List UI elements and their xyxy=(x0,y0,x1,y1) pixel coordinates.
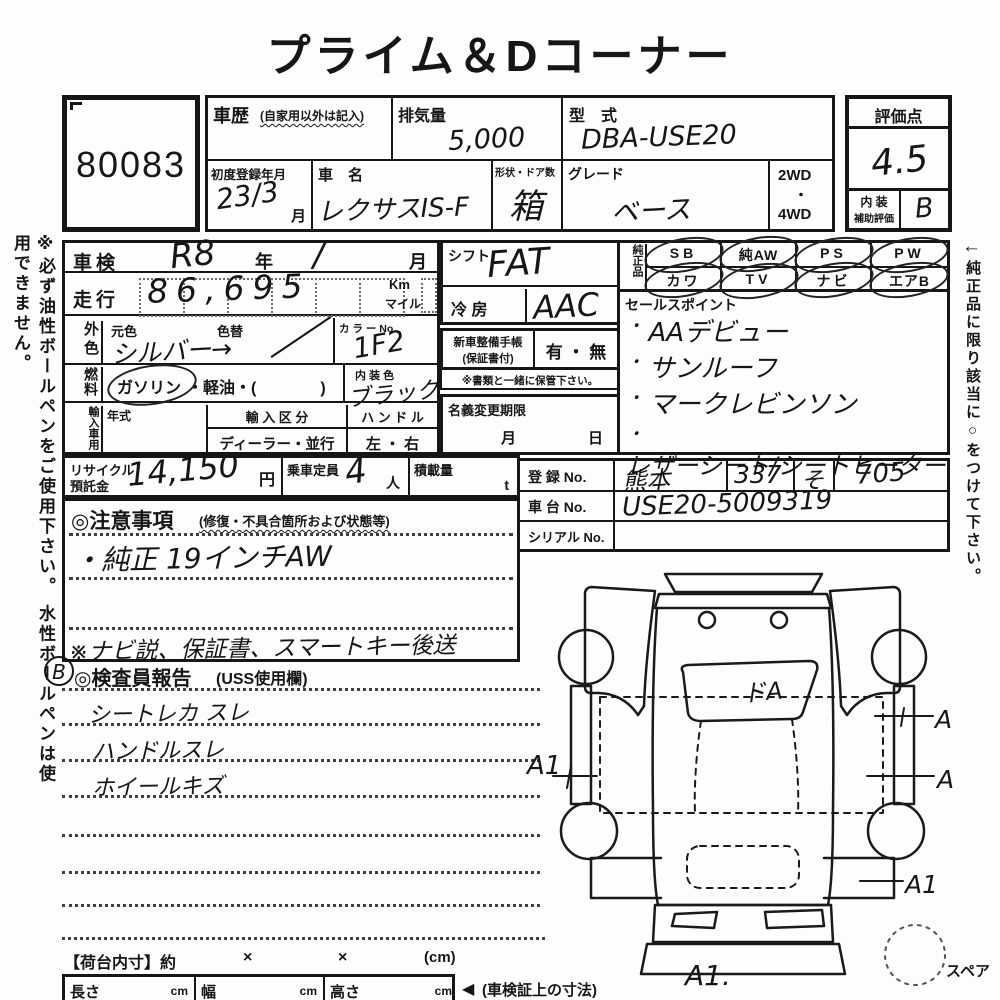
shift-value: FAT xyxy=(486,241,551,286)
fuel-circle-mark xyxy=(105,359,200,411)
right-genuine-note: 純正品に限り該当に○をつけて下さい。 xyxy=(962,260,983,700)
bed-label: 【荷台内寸】約 xyxy=(64,949,176,973)
bed-unit: (cm) xyxy=(424,949,456,966)
first-reg-cell: 初度登録年月 23/3 月 xyxy=(208,161,313,229)
import-class-label: 輸 入 区 分 xyxy=(208,405,346,429)
ext-color-row: 外色 元色 色替 シルバー→ カ ラ ー No. 1F2 xyxy=(65,318,437,365)
grade-cell: グレード ベース xyxy=(563,161,770,229)
left-door-strip xyxy=(571,686,591,804)
inspector-badge: B xyxy=(44,656,74,686)
shaken-month-value: / xyxy=(313,235,324,275)
trunk-detail-right xyxy=(771,612,787,628)
displacement-value: 5,000 xyxy=(447,122,526,157)
name-change-label: 名義変更期限 xyxy=(448,400,526,419)
model-code-cell: 型 式 DBA-USE20 xyxy=(563,98,832,161)
right-rear-wheel xyxy=(868,803,924,859)
sales-bullet: ・ xyxy=(626,388,644,409)
grade-label: グレード xyxy=(568,164,624,184)
sunroof-dashed-outline xyxy=(687,846,799,888)
roof-dashed-outline xyxy=(600,697,883,813)
name-change-box: 名義変更期限 月 日 xyxy=(440,394,620,455)
displacement-cell: 排気量 5,000 xyxy=(393,98,563,161)
width-label: 幅 xyxy=(201,981,216,1000)
ac-value: AAC xyxy=(532,285,600,326)
headlight-left xyxy=(672,912,717,928)
import-class-cell: 輸 入 区 分 ディーラー・並行 xyxy=(208,405,348,452)
name-change-month: 月 xyxy=(501,427,516,448)
import-row: 輸入車用 年式 輸 入 区 分 ディーラー・並行 ハ ン ド ル 左 ・ 右 xyxy=(65,405,437,452)
fuel-row: 燃料 ガソリン ・軽油・( ) 内 装 色 ブラック xyxy=(65,365,437,403)
inspector-badge-value: B xyxy=(52,660,66,684)
height-label: 高さ xyxy=(330,981,360,1000)
body-right-edge xyxy=(828,608,833,905)
load-unit: t xyxy=(504,477,509,493)
ac-label: 冷 房 xyxy=(451,296,487,320)
capacity-label: 乗車定員 xyxy=(287,460,339,479)
left-rear-wheel xyxy=(561,803,617,859)
shift-ac-box: シフト FAT 冷 房 AAC xyxy=(440,240,620,325)
reg-no-label: 登 録 No. xyxy=(528,467,586,487)
drive-2wd: 2WD xyxy=(778,167,811,184)
year-model-label: 年式 xyxy=(107,407,131,424)
mile-box xyxy=(421,278,437,313)
vehicle-table: 車検 R8 年 / 月 走行 86,695 Km マイル 外色 元色 色替 シル… xyxy=(62,240,440,455)
body-shape-value: 箱 xyxy=(509,179,543,228)
mile-label: マイル xyxy=(385,295,421,312)
capacity-value: 4 xyxy=(342,451,369,494)
car-name-cell: 車 名 レクサスIS-F xyxy=(313,161,493,229)
service-book-note: ※書類と一緒に保管下さい。 xyxy=(440,370,620,390)
body-left-edge xyxy=(653,608,658,905)
service-book-label-1: 新車整備手帳 xyxy=(443,334,533,350)
dims-arrow-icon: ◀ xyxy=(462,979,474,999)
left-rear-panel xyxy=(591,858,661,898)
mileage-label: 走行 xyxy=(73,285,119,312)
notes-title: ◎注意事項 xyxy=(71,505,173,535)
right-fender-panel xyxy=(830,587,900,715)
body-shape-cell: 形状・ドア数 箱 xyxy=(493,161,563,229)
score-value: 4.5 xyxy=(869,138,930,185)
notes-box: ◎注意事項 (修復・不具合箇所および状態等) ・純正 19インチAW ※ナビ説、… xyxy=(62,498,520,662)
grade-value: ベース xyxy=(610,187,692,230)
sales-bullet: ・ xyxy=(626,352,644,373)
car-name-label: 車 名 xyxy=(318,164,363,185)
reg-class-value: 337 xyxy=(734,460,782,489)
service-book-box: 新車整備手帳 (保証書付) 有 ・ 無 xyxy=(440,328,620,370)
serial-no-label: シリアル No. xyxy=(528,527,604,546)
left-pen-note: ※必ず油性ボールペンをご使用下さい。 水性ボールペンは使用できません。 xyxy=(8,234,58,794)
damage-mark-right-bottom: A1 xyxy=(903,870,938,899)
displacement-label: 排気量 xyxy=(398,102,446,126)
reg-number-value: 705 xyxy=(855,457,907,490)
score-box: 評価点 4.5 内 装 補助評価 B xyxy=(845,95,952,232)
left-fender-panel xyxy=(585,587,655,715)
dims-table: 長さ cm 幅 cm 高さ cm xyxy=(62,974,455,1000)
shaken-label: 車検 xyxy=(73,248,119,275)
slash-mark xyxy=(271,316,332,358)
service-book-label-2: (保証書付) xyxy=(443,350,533,366)
drive-cell: 2WD ・ 4WD xyxy=(770,161,832,229)
inspector-title: ◎検査員報告 xyxy=(74,662,191,691)
front-skirt-outline xyxy=(641,944,845,974)
mileage-value: 86,695 xyxy=(146,266,311,311)
notes-line-1: ・純正 19インチAW xyxy=(73,535,333,580)
sales-point-2: サンルーフ xyxy=(648,354,776,384)
car-name-value: レクサスIS-F xyxy=(316,186,469,228)
handle-label: ハ ン ド ル xyxy=(348,405,437,429)
right-arrow-icon: ← xyxy=(962,236,981,258)
genuine-grid: 純正品 SB 純AW PS PW カワ TV ナビ エアB xyxy=(617,240,950,292)
damage-mark-right-top: A xyxy=(933,705,952,734)
bed-x2: × xyxy=(338,949,347,967)
handle-cell: ハ ン ド ル 左 ・ 右 xyxy=(348,405,437,452)
recycle-label-2: 預託金 xyxy=(70,476,109,495)
glass-damage-mark: ドA xyxy=(741,677,784,708)
damage-mark-bottom: A1. xyxy=(683,959,731,992)
page-title: プライム＆Dコーナー xyxy=(0,20,1000,84)
recycle-row: リサイクル 預託金 14,150 円 乗車定員 4 人 積載量 t xyxy=(62,455,520,498)
car-damage-diagram: ドA A1 A A A1 A1. xyxy=(525,560,960,995)
registration-table: 登 録 No. 車 台 No. シリアル No. 熊本 337 そ 705 US… xyxy=(517,458,950,552)
drive-dot: ・ xyxy=(794,185,808,205)
header-table: 車歴 (自家用以外は記入) 排気量 5,000 型 式 DBA-USE20 初度… xyxy=(205,95,835,232)
sales-points-box: セールスポイント ・ AAデビュー ・ サンルーフ ・ マークレビンソン ・ レ… xyxy=(617,292,950,455)
shift-label: シフト xyxy=(448,246,490,266)
trunk-bar-outline xyxy=(655,594,831,608)
chassis-no-label: 車 台 No. xyxy=(528,497,586,517)
height-unit: cm xyxy=(435,984,452,998)
inspector-subtitle: (USS使用欄) xyxy=(216,665,308,689)
auction-sheet: プライム＆Dコーナー ※必ず油性ボールペンをご使用下さい。 水性ボールペンは使用… xyxy=(0,0,1000,1000)
right-rear-panel xyxy=(824,858,894,898)
interior-label-1: 内 装 xyxy=(849,193,899,210)
sales-bullet: ・ xyxy=(626,424,644,445)
chassis-no-value: USE20-5009319 xyxy=(622,485,833,522)
import-label: 輸入車用 xyxy=(65,406,103,452)
fuel-option-rest: ・軽油・( ) xyxy=(187,374,326,398)
recycle-unit: 円 xyxy=(259,466,275,490)
cabin-dashed-right xyxy=(792,719,798,813)
shaken-month-suffix: 月 xyxy=(409,248,427,274)
right-door-strip xyxy=(894,686,914,804)
notes-bottom-note: ※ナビ説、保証書、スマートキー後送 xyxy=(69,626,456,667)
km-label: Km xyxy=(389,277,410,292)
width-unit: cm xyxy=(300,984,317,998)
interior-grade-label: 内 装 補助評価 xyxy=(849,190,901,228)
mileage-row: 走行 86,695 Km マイル xyxy=(65,275,437,316)
spare-tire-circle xyxy=(885,925,945,985)
sales-point-1: AAデビュー xyxy=(648,318,788,348)
lot-number: 80083 xyxy=(67,144,195,186)
name-change-day: 日 xyxy=(588,427,603,448)
headlight-right xyxy=(765,910,824,928)
trunk-detail-left xyxy=(699,612,715,628)
damage-mark-right-mid: A xyxy=(935,765,954,794)
body-shape-label: 形状・ドア数 xyxy=(495,164,555,179)
history-label: 車歴 xyxy=(213,102,249,128)
load-label: 積載量 xyxy=(414,460,453,479)
ext-color-label: 外色 xyxy=(65,321,103,365)
interior-label-2: 補助評価 xyxy=(849,210,899,225)
damage-tick-lines xyxy=(553,708,934,881)
capacity-unit: 人 xyxy=(386,473,400,493)
damage-mark-left: A1 xyxy=(525,751,561,781)
genuine-label: 純正品 xyxy=(620,244,647,290)
interior-grade-value: B xyxy=(914,192,935,224)
corner-mark xyxy=(70,102,82,110)
notes-subtitle: (修復・不具合箇所および状態等) xyxy=(199,511,390,530)
history-cell: 車歴 (自家用以外は記入) xyxy=(208,98,393,161)
length-unit: cm xyxy=(171,984,188,998)
spoiler-outline xyxy=(665,574,822,592)
drive-4wd: 4WD xyxy=(778,206,811,223)
bed-x1: × xyxy=(243,949,252,967)
year-model-cell: 年式 xyxy=(103,405,208,452)
length-label: 長さ xyxy=(70,981,100,1000)
model-code-value: DBA-USE20 xyxy=(581,119,738,155)
sales-point-3: マークレビンソン xyxy=(648,390,856,420)
cabin-dashed-left xyxy=(695,721,701,813)
model-code-label: 型 式 xyxy=(569,102,617,126)
history-note: (自家用以外は記入) xyxy=(260,107,364,124)
sales-bullet: ・ xyxy=(626,316,644,337)
service-book-options: 有 ・ 無 xyxy=(535,338,617,363)
fuel-label: 燃料 xyxy=(65,367,103,403)
score-label: 評価点 xyxy=(849,103,948,127)
first-reg-month: 月 xyxy=(291,205,306,226)
lot-number-box: 80083 xyxy=(62,95,200,232)
